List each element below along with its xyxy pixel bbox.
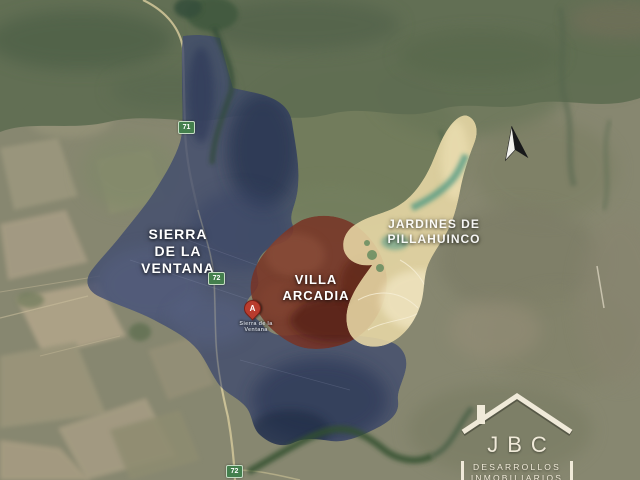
label-line: SIERRA (108, 226, 248, 243)
route-shield-icon: 72 (226, 465, 243, 478)
north-arrow-icon (496, 122, 532, 166)
route-shield-icon: 71 (178, 121, 195, 134)
label-line: VENTANA (108, 260, 248, 277)
pin-caption-line: Ventana (220, 327, 292, 333)
logo-subtitle-line: INMOBILIARIOS (471, 473, 563, 480)
logo-brand-text: JBC (455, 432, 579, 458)
label-line: VILLA (256, 272, 376, 288)
label-line: ARCADIA (256, 288, 376, 304)
logo-subtitle-line: DESARROLLOS (471, 462, 563, 473)
route-number: 72 (231, 468, 239, 475)
region-label-sierra-de-la-ventana: SIERRA DE LA VENTANA (108, 226, 248, 277)
pin-caption: Sierra de la Ventana (220, 321, 292, 333)
route-number: 71 (183, 124, 191, 131)
logo-subtitle: DESARROLLOS INMOBILIARIOS (461, 461, 573, 480)
region-label-jardines-de-pillahuinco: JARDINES DE PILLAHUINCO (364, 217, 504, 247)
pin-letter: A (245, 301, 260, 316)
house-roof-icon (455, 392, 579, 436)
route-number: 72 (213, 275, 221, 282)
route-shield-icon: 72 (208, 272, 225, 285)
label-line: JARDINES DE (364, 217, 504, 232)
satellite-map-image: SIERRA DE LA VENTANA VILLA ARCADIA JARDI… (0, 0, 640, 480)
region-label-villa-arcadia: VILLA ARCADIA (256, 272, 376, 304)
label-line: PILLAHUINCO (364, 232, 504, 247)
jbc-logo: JBC DESARROLLOS INMOBILIARIOS (455, 392, 579, 480)
label-line: DE LA (108, 243, 248, 260)
